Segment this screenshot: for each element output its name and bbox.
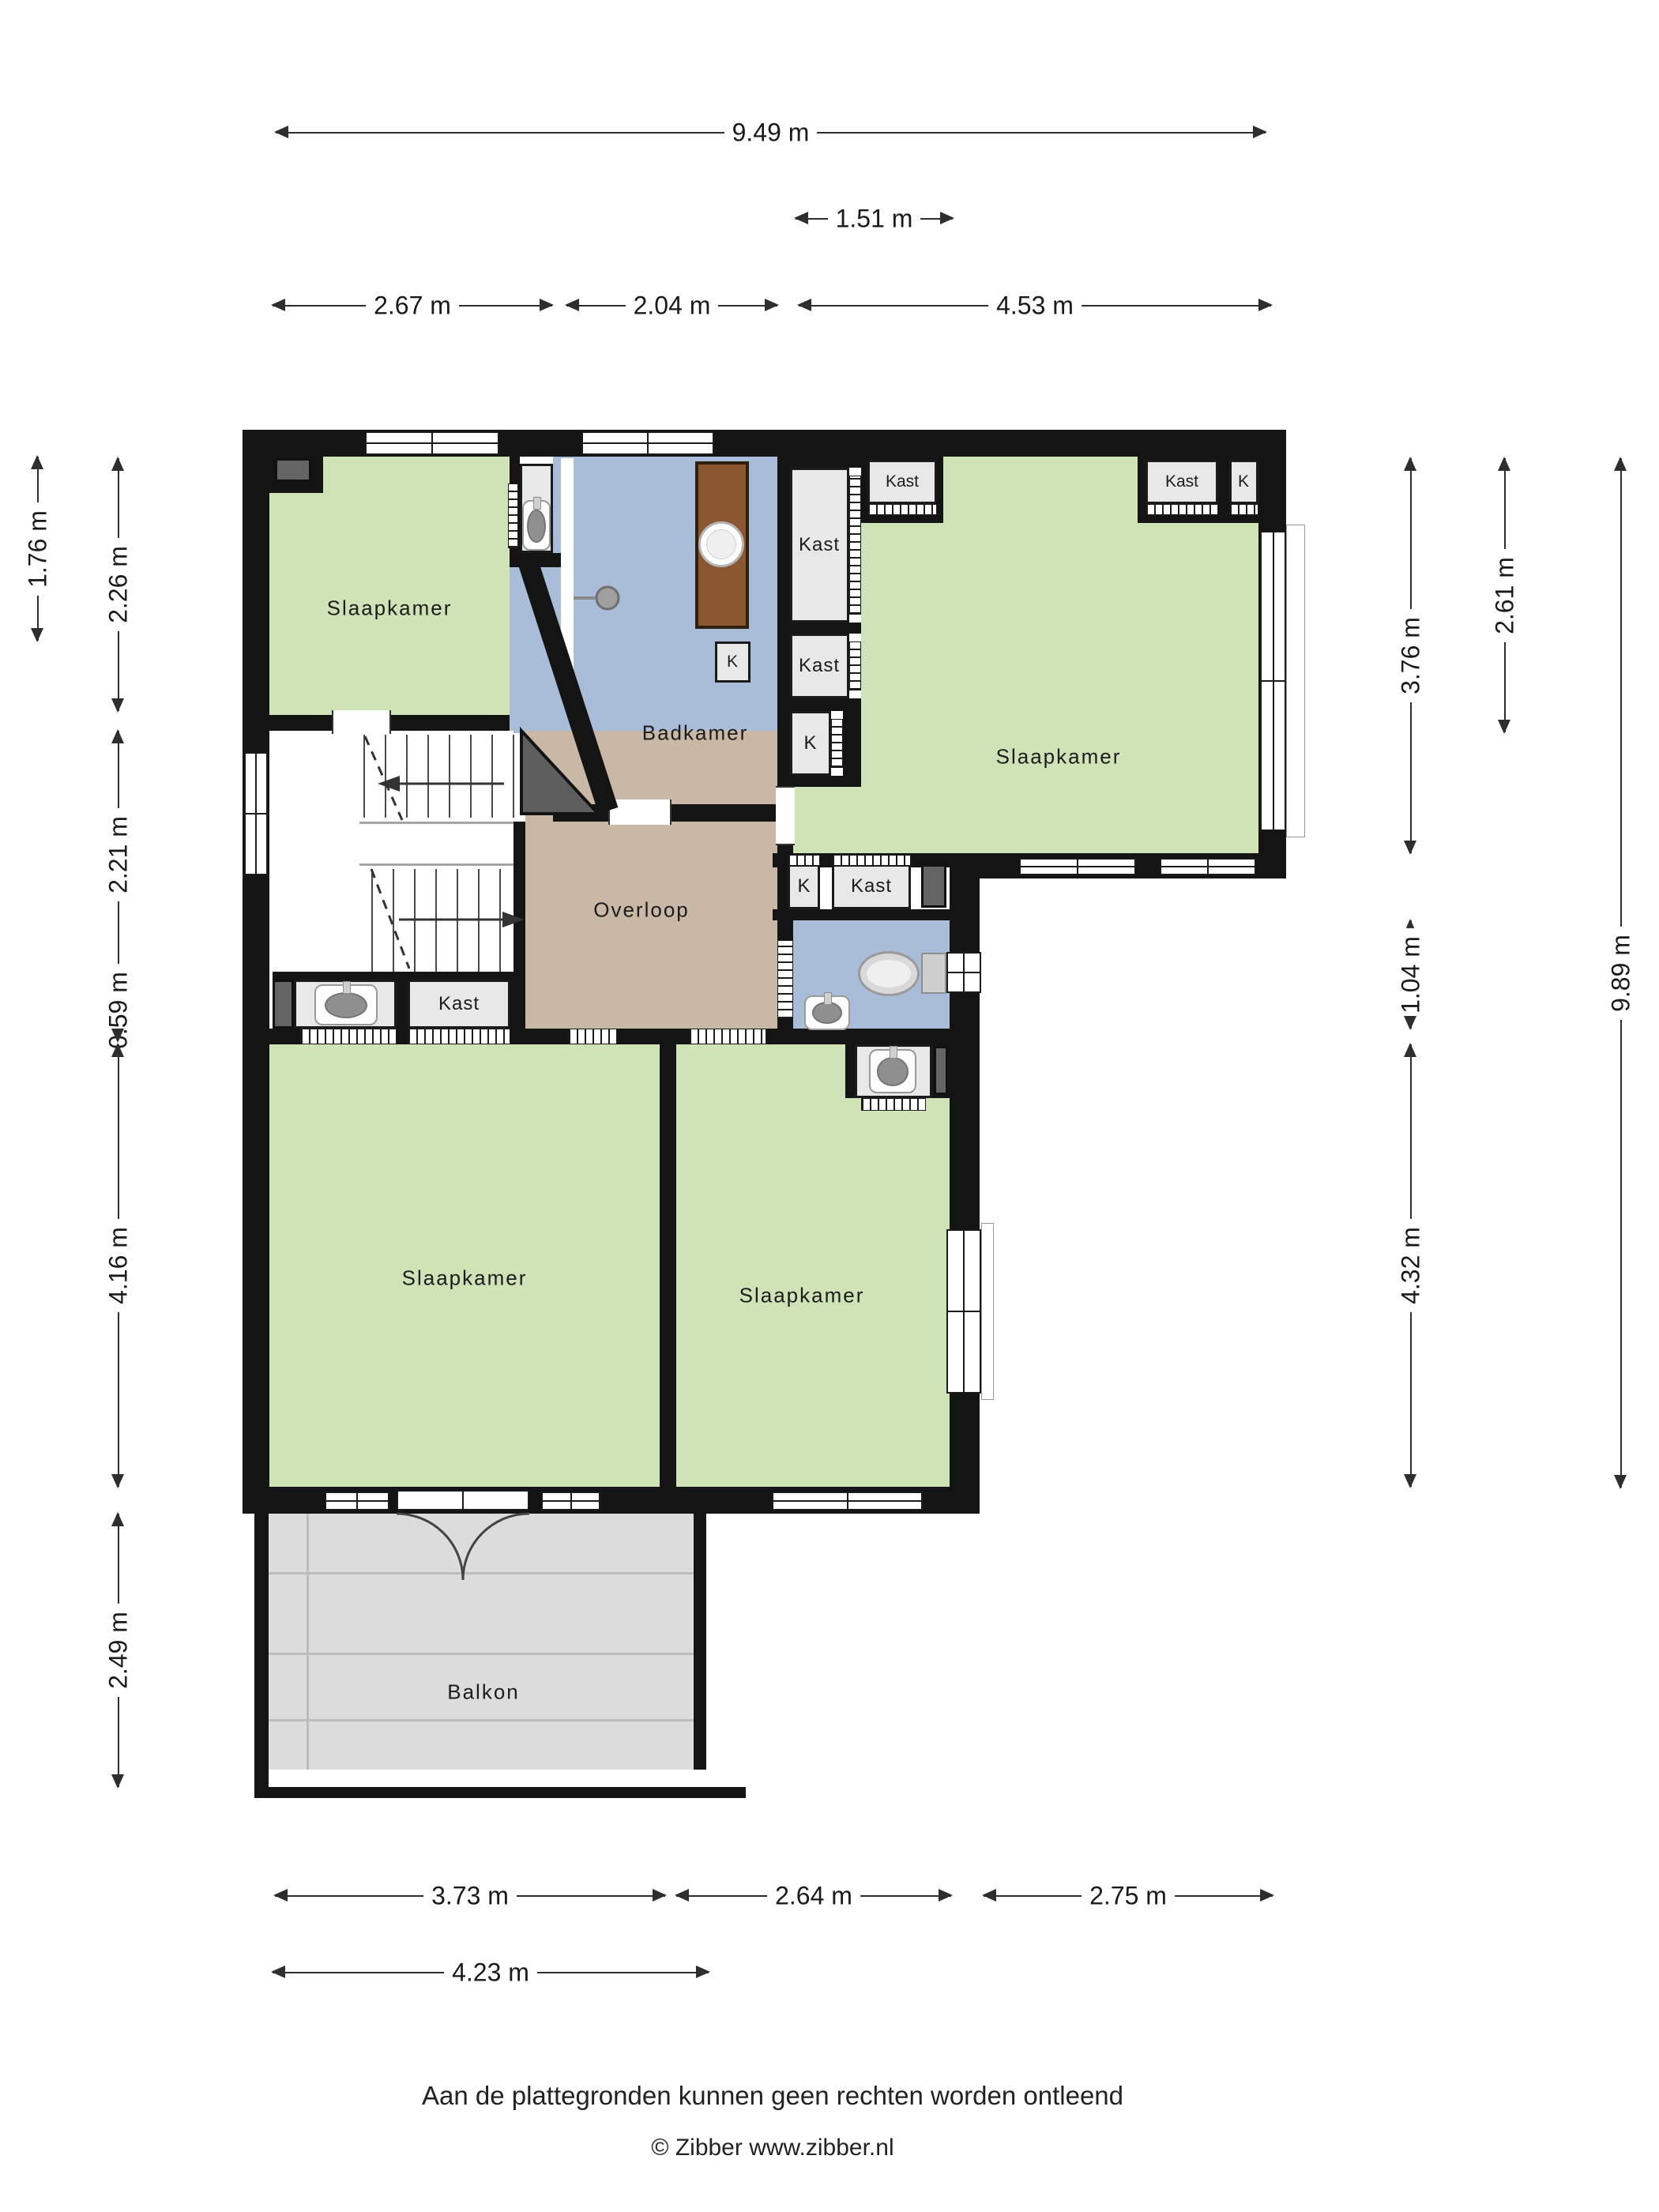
dim-right-989: 9.89 m [1620, 458, 1622, 1488]
stair-upper-treads [363, 735, 515, 818]
hatch-sink-cell-front [300, 1029, 397, 1044]
hatch-bed1-niche-door [508, 483, 518, 548]
window-bed1-top [365, 431, 499, 455]
balcony-line-1 [269, 1572, 694, 1574]
closet-label-k-bathroom: K [727, 653, 738, 671]
bedroom-top-left-floor [269, 457, 510, 715]
toilet-tank [921, 953, 946, 994]
hatch-toilet-door [777, 940, 793, 1019]
closet-label-k-column: K [803, 732, 817, 754]
balcony-french-door [397, 1490, 529, 1510]
bed1-niche-sink [522, 500, 551, 551]
wall-boundary-0 [269, 1029, 300, 1044]
balcony-wall-right [694, 1514, 706, 1770]
dim-bathroom-width: 2.04 m [566, 305, 777, 307]
bathroom-floor-under-niche [510, 567, 553, 733]
wall-closet-col-3 [790, 698, 861, 711]
door-bed1 [332, 710, 391, 734]
dim-overall-width: 9.49 m [276, 132, 1266, 134]
balcony-line-3 [269, 1719, 694, 1721]
sill-bedbr-right [981, 1223, 994, 1400]
room-label-bedroom-top-left: Slaapkamer [327, 596, 453, 621]
door-bedroom-right [776, 786, 795, 845]
room-label-balcony: Balkon [447, 1680, 520, 1705]
closet-label-kast-column-top: Kast [799, 534, 840, 556]
balcony-line-2 [269, 1653, 694, 1655]
closet-label-kast-topright: Kast [1165, 472, 1198, 491]
window-bedright-bottom-2 [1160, 858, 1256, 875]
dim-partial-151: 1.51 m [796, 218, 953, 220]
dim-right-261: 2.61 m [1504, 458, 1506, 732]
wall-closet-col-4 [790, 776, 861, 787]
bedroom-niche-sink [869, 1049, 916, 1093]
door-bathroom [608, 799, 671, 825]
dim-left-059: 0.59 m [118, 980, 119, 1041]
stair-lower-treads [371, 869, 515, 972]
dim-left-249: 2.49 m [118, 1514, 119, 1787]
shower-partition [561, 458, 574, 678]
room-label-bathroom: Badkamer [642, 721, 749, 746]
window-bottom-left-2 [541, 1492, 600, 1510]
room-label-landing: Overloop [593, 898, 690, 923]
room-label-bedroom-bottom-right: Slaapkamer [739, 1284, 865, 1308]
sill-bedright-right [1286, 525, 1305, 837]
window-bathroom-top [581, 431, 714, 455]
wall-niche2-left [845, 1044, 855, 1098]
hatch-kast-topright [1145, 504, 1218, 515]
balcony-line-vertical [307, 1514, 309, 1770]
hatch-bedroom-niche2 [861, 1098, 926, 1111]
window-toilet-right [946, 952, 981, 993]
balcony-wall-left [254, 1514, 269, 1798]
hatch-kast-toilet-row [832, 855, 911, 866]
hatch-k-toilet-row [788, 855, 820, 866]
hatch-k-topright [1229, 504, 1258, 515]
window-bedright-right [1260, 531, 1286, 831]
footer-copyright: © Zibber www.zibber.nl [651, 2135, 893, 2161]
hatch-landing-door-bl [568, 1029, 617, 1044]
dim-bedroom-tl-width: 2.67 m [273, 305, 552, 307]
niche2-dark-panel [934, 1046, 948, 1095]
footer-disclaimer: Aan de plattegronden kunnen geen rechten… [422, 2081, 1123, 2111]
room-label-bedroom-right: Slaapkamer [996, 745, 1122, 769]
hatch-kast-topwall [867, 504, 937, 515]
wall-between-bottom-beds [660, 1044, 676, 1487]
dim-bottom-423: 4.23 m [273, 1972, 709, 1973]
wall-closet-col-2 [790, 623, 861, 634]
dim-right-376: 3.76 m [1410, 458, 1412, 853]
closet-label-k-toilet-row: K [797, 875, 811, 897]
landing-floor [525, 731, 777, 1029]
hatch-kast-column-top [849, 476, 861, 615]
closet-label-kast-column-mid: Kast [799, 655, 840, 677]
hatch-k-column [831, 719, 843, 768]
closet-label-k-topright: K [1238, 472, 1249, 491]
wall-closet-col-spine [777, 455, 790, 731]
wall-stair-landing [513, 822, 525, 984]
dim-right-104: 1.04 m [1410, 920, 1412, 1029]
room-label-bedroom-bottom-left: Slaapkamer [402, 1266, 528, 1291]
window-bedbr-right [946, 1229, 981, 1394]
vanity-basin [698, 521, 744, 567]
window-bedright-bottom-1 [1019, 858, 1136, 875]
wall-toilet-bottom [773, 1029, 980, 1044]
hatch-kast-column-mid [849, 641, 861, 690]
closet-label-kast-topwall: Kast [886, 472, 919, 491]
wall-left [243, 430, 269, 1514]
wall-boundary-1 [397, 1029, 408, 1044]
wall-closet-col-fill [843, 711, 861, 776]
hatch-landing-door-br [689, 1029, 766, 1044]
window-bottom-right [772, 1492, 923, 1510]
toilet-hand-sink [804, 995, 850, 1030]
wall-closet-col-1 [790, 455, 861, 468]
dim-left-416: 4.16 m [118, 1044, 119, 1487]
wall-niche-bottom [510, 553, 561, 567]
wall-boundary-2 [510, 1029, 568, 1044]
closet-row-dark-panel [921, 864, 946, 908]
wall-boundary-3 [617, 1029, 689, 1044]
dim-right-432: 4.32 m [1410, 1044, 1412, 1487]
dim-bottom-275: 2.75 m [984, 1895, 1273, 1897]
balcony-floor [269, 1514, 694, 1770]
dim-bottom-373: 3.73 m [275, 1895, 665, 1897]
bedroom-right-strip [790, 787, 861, 853]
hatch-kast-cell-front [408, 1029, 510, 1044]
dim-left-226: 2.26 m [118, 458, 119, 711]
bedroom-bottom-right-floor [676, 1044, 950, 1487]
cell-stub-dark [273, 980, 294, 1029]
wall-toilet-top [773, 909, 980, 920]
floor-plan-page: Slaapkamer Badkamer Slaapkamer Overloop … [0, 0, 1659, 2212]
dim-left-221: 2.21 m [118, 731, 119, 978]
dim-bottom-264: 2.64 m [676, 1895, 951, 1897]
window-stairs-left [244, 752, 268, 875]
closet-label-kast-cell: Kast [438, 993, 480, 1015]
window-bottom-left-1 [325, 1492, 389, 1510]
balcony-rim [254, 1787, 746, 1798]
toilet-bowl [858, 951, 920, 996]
dim-left-176: 1.76 m [37, 457, 39, 641]
closet-label-kast-toilet-row: Kast [851, 875, 892, 897]
dim-bedroom-r-width: 4.53 m [799, 305, 1271, 307]
chimney-block [275, 458, 311, 482]
stair-landing-strip [359, 822, 513, 866]
cell-sink [314, 984, 378, 1025]
